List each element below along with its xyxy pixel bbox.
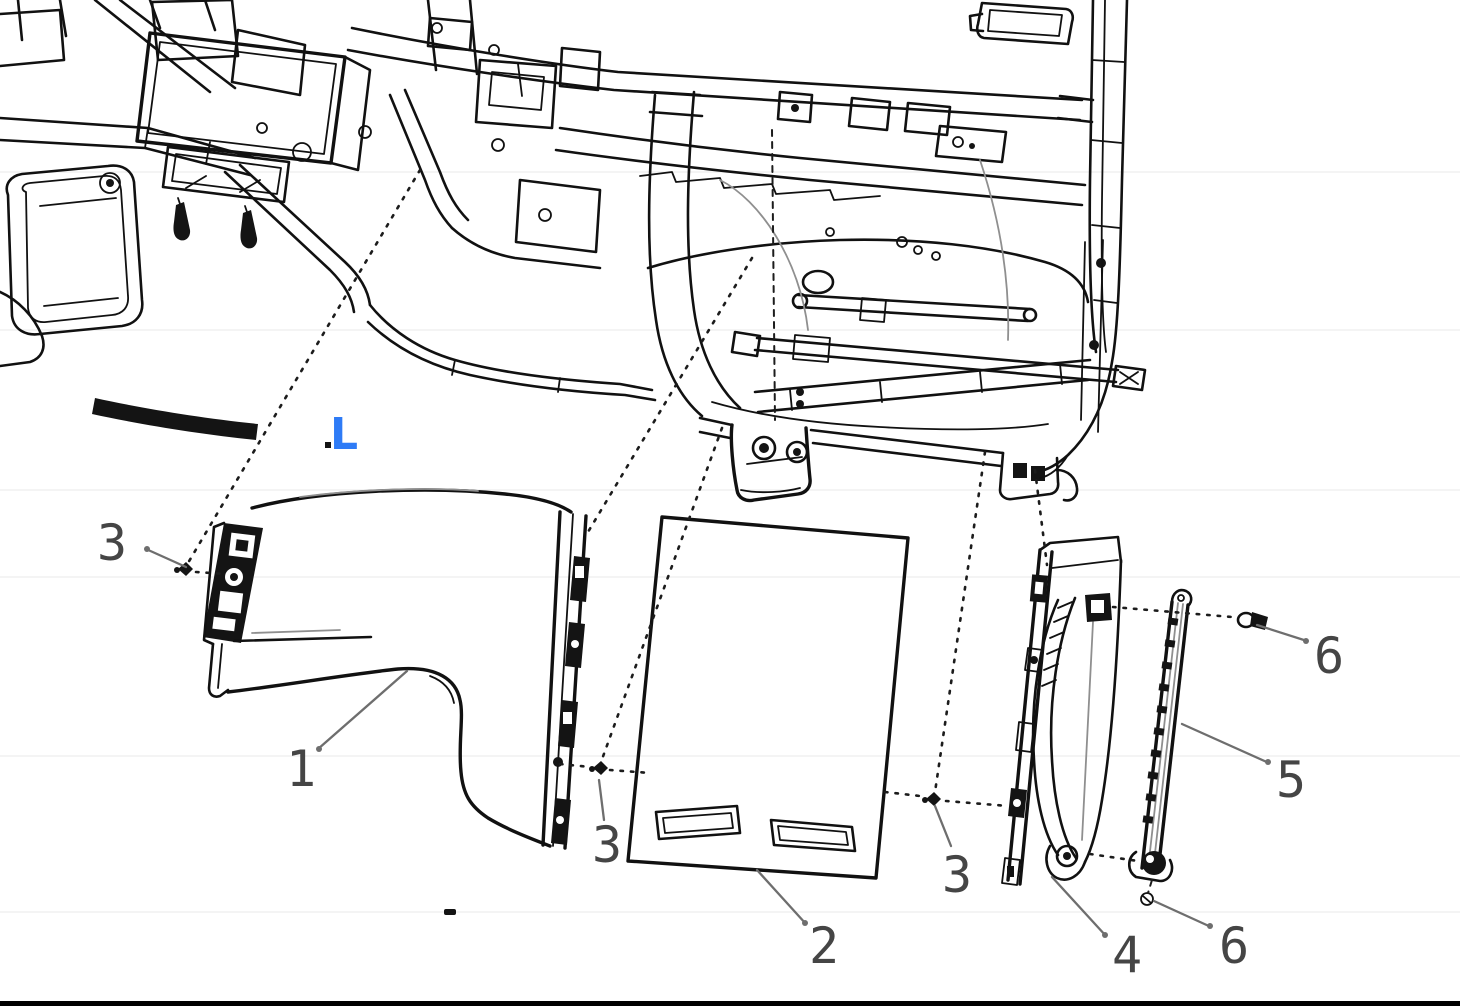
callout-3-lower-right: 3 — [942, 846, 972, 904]
screw-6-lower — [1141, 893, 1153, 905]
screenshot-canvas: 3 1 3 2 3 4 6 5 6 L — [0, 0, 1460, 1007]
part-4-side-bracket — [1002, 537, 1121, 885]
view-label-tick — [325, 442, 331, 448]
callout-6-upper: 6 — [1314, 627, 1344, 685]
part-5-reinforcement-rail — [1129, 590, 1191, 881]
scan-artifact-bands — [0, 172, 1460, 912]
callout-3-upper-left: 3 — [97, 514, 127, 572]
fastener-3-lower-center — [589, 761, 608, 775]
callout-leader-lines — [144, 546, 1309, 938]
instrument-panel-assembly-line-art — [0, 0, 1145, 501]
exploded-parts-diagram: 3 1 3 2 3 4 6 5 6 L — [0, 0, 1460, 1007]
callout-2: 2 — [809, 917, 839, 975]
callout-1: 1 — [286, 740, 316, 798]
stray-tick-mark — [444, 909, 456, 915]
view-label: L — [325, 409, 358, 460]
bottom-rule — [0, 1001, 1460, 1006]
callout-6-lower: 6 — [1219, 917, 1249, 975]
fastener-3-lower-right — [922, 792, 941, 806]
callout-5: 5 — [1276, 751, 1306, 809]
view-label-l: L — [330, 409, 358, 460]
part-1-end-panel — [203, 489, 590, 848]
part-2-insulator-panel — [628, 517, 908, 878]
callout-3-lower-center: 3 — [592, 816, 622, 874]
callout-4: 4 — [1112, 926, 1142, 984]
